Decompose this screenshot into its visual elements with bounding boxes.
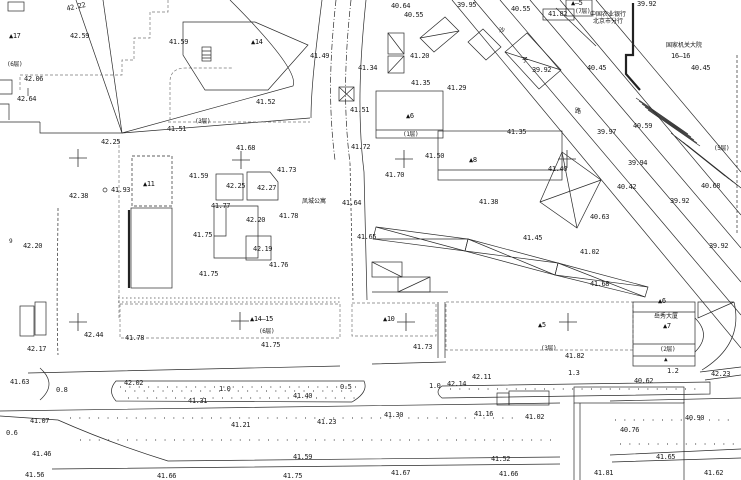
elevation-label: 41.51 [350,107,369,114]
elevation-label: 16—16 [671,53,690,60]
floor-count-label: (2层) [660,346,675,353]
floor-count-label: (1层) [403,131,418,138]
building-label: ▲11 [143,181,154,188]
building-name: 沙 [499,28,505,34]
road-width-label: 0.5 [340,384,351,391]
elevation-label: 41.68 [590,281,609,288]
road-width-label: 1.2 [667,368,678,375]
elevation-label: 42.27 [257,185,276,192]
elevation-label: 42.59 [70,33,89,40]
elevation-label: 39.95 [457,2,476,9]
elevation-label: 41.23 [317,419,336,426]
elevation-label: 41.49 [310,53,329,60]
elevation-label: 41.38 [479,199,498,206]
elevation-label: 41.16 [474,411,493,418]
building-label: ▲14—15 [250,316,273,323]
elevation-label: 41.35 [411,80,430,87]
elevation-label: 41.78 [279,213,298,220]
elevation-label: 41.21 [231,422,250,429]
elevation-label: 41.45 [523,235,542,242]
building-name: 国家机关大院 [666,43,702,49]
elevation-label: 40.90 [685,415,704,422]
building-name: 北京市分行 [593,19,623,25]
elevation-label: 41.40 [548,166,567,173]
elevation-label: 40.59 [633,123,652,130]
elevation-label: 40.55 [404,12,423,19]
elevation-label: 41.65 [357,234,376,241]
building-name: 子 [522,58,528,64]
elevation-label: 41.73 [413,344,432,351]
elevation-label: 41.07 [30,418,49,425]
building-label: ▲8 [469,157,477,164]
elevation-label: 42.44 [84,332,103,339]
elevation-label: 40.68 [701,183,720,190]
elevation-label: 41.81 [594,470,613,477]
elevation-label: 39.92 [670,198,689,205]
elevation-label: 41.59 [293,454,312,461]
building-label: ▲6 [658,298,666,305]
compound-west [20,140,445,358]
elevation-label: 40.76 [620,427,639,434]
elevation-label: 41.31 [188,398,207,405]
elevation-label: 42.38 [69,193,88,200]
building-label: ▲5 [538,322,546,329]
building-label: ▲7 [663,323,671,330]
elevation-label: 41.52 [256,99,275,106]
elevation-label: 41.35 [507,129,526,136]
elevation-label: 41.63 [10,379,29,386]
symbol: 9 [9,238,12,245]
elevation-label: 41.70 [385,172,404,179]
elevation-label: 41.67 [391,470,410,477]
elevation-label: 39.97 [597,129,616,136]
elevation-label: 42.20 [23,243,42,250]
elevation-label: 40.62 [634,378,653,385]
elevation-label: 41.50 [425,153,444,160]
elevation-label: 41.75 [193,232,212,239]
elevation-label: 41.59 [169,39,188,46]
floor-count-label: (5层) [714,145,729,152]
building-name: 岳秀大厦 [654,314,678,320]
elevation-label: 41.52 [491,456,510,463]
elevation-label: 41.77 [211,203,230,210]
floor-count-label: (3层) [195,118,210,125]
building-label: ▲17 [9,33,20,40]
survey-map-canvas: 42.2240.6439.9539.9240.5540.55▲—541.82(7… [0,0,741,480]
building-label: ▲10 [383,316,394,323]
elevation-label: 41.73 [277,167,296,174]
elevation-label: 42.14 [447,381,466,388]
street-lower [0,398,741,480]
floor-count-label: (6层) [259,328,274,335]
elevation-label: 41.62 [704,470,723,477]
building-label: ▲14 [251,39,262,46]
elevation-label: 40.63 [590,214,609,221]
building-label: ▲6 [406,113,414,120]
building-8 [438,131,601,228]
elevation-label: 42.17 [27,346,46,353]
road-northwest [0,0,310,133]
road-width-label: 0.6 [6,430,17,437]
elevation-label: 41.75 [283,473,302,480]
elevation-label: 42.23 [711,371,730,378]
elevation-label: 41.93 [111,187,130,194]
elevation-label: 41.75 [199,271,218,278]
elevation-label: 41.82 [548,11,567,18]
elevation-label: 41.66 [157,473,176,480]
elevation-label: 39.92 [709,243,728,250]
elevation-label: 41.51 [167,126,186,133]
elevation-label: 42.06 [24,76,43,83]
elevation-label: 42.25 [101,139,120,146]
yuexiu-tower [633,302,741,380]
elevation-label: 42.02 [124,380,143,387]
elevation-label: 40.45 [691,65,710,72]
elevation-label: 40.42 [617,184,636,191]
floor-count-label: (3层) [541,345,556,352]
elevation-label: 40.64 [391,3,410,10]
elevation-label: 42.20 [246,217,265,224]
symbol: ▲ [664,356,667,363]
floor-count-label: (6层) [7,61,22,68]
elevation-label: 41.20 [410,53,429,60]
elevation-label: 41.02 [525,414,544,421]
floor-count-label: (7层) [575,8,590,15]
building-label: ▲—5 [571,0,582,7]
elevation-label: 41.65 [656,454,675,461]
elevation-label: 42.64 [17,96,36,103]
elevation-label: 40.45 [587,65,606,72]
elevation-label: 41.59 [189,173,208,180]
elevation-label: 41.34 [358,65,377,72]
elevation-label: 41.68 [236,145,255,152]
elevation-label: 40.55 [511,6,530,13]
elevation-label: 39.92 [532,67,551,74]
elevation-label: 41.02 [580,249,599,256]
elevation-label: 42.11 [472,374,491,381]
road-width-label: 0.8 [56,387,67,394]
road-width-label: 1.0 [429,383,440,390]
building-name: 路 [575,109,581,115]
elevation-label: 41.66 [499,471,518,478]
elevation-label: 42.25 [226,183,245,190]
elevation-label: 41.56 [25,472,44,479]
road-width-label: 1.0 [219,386,230,393]
road-diagonal [452,0,741,348]
building-name: 凤城公寓 [302,199,326,205]
elevation-label: 41.46 [32,451,51,458]
elevation-label: 41.64 [342,200,361,207]
elevation-label: 41.82 [565,353,584,360]
elevation-label: 41.75 [261,342,280,349]
elevation-label: 41.40 [293,393,312,400]
elevation-label: 41.78 [125,335,144,342]
elevation-label: 41.29 [447,85,466,92]
road-width-label: 1.3 [568,370,579,377]
elevation-label: 39.92 [637,1,656,8]
elevation-label: 41.72 [351,144,370,151]
elevation-label: 41.76 [269,262,288,269]
bank-buildings [420,0,596,89]
elevation-label: 39.94 [628,160,647,167]
elevation-label: 41.30 [384,412,403,419]
elevation-label: 42.19 [253,246,272,253]
